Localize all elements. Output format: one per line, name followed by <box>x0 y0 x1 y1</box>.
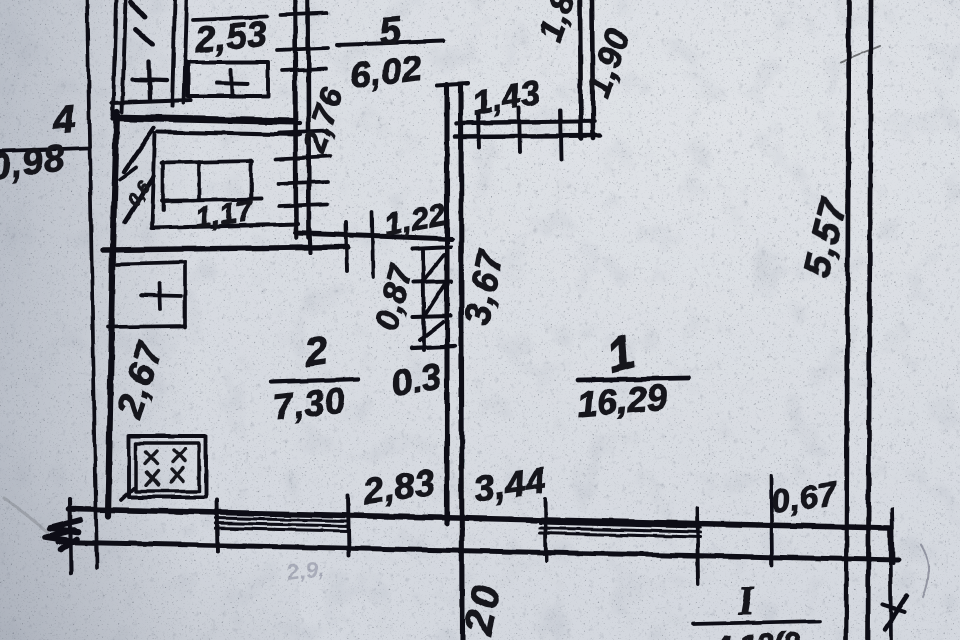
svg-text:I: I <box>737 578 755 623</box>
svg-text:0.3: 0.3 <box>388 355 444 404</box>
svg-text:7,30: 7,30 <box>271 379 347 427</box>
svg-text:6,02: 6,02 <box>348 47 425 96</box>
svg-text:2,53: 2,53 <box>192 13 268 60</box>
svg-text:4: 4 <box>50 97 77 143</box>
svg-text:2,9,: 2,9, <box>284 556 325 586</box>
svg-text:16,29: 16,29 <box>575 376 668 425</box>
